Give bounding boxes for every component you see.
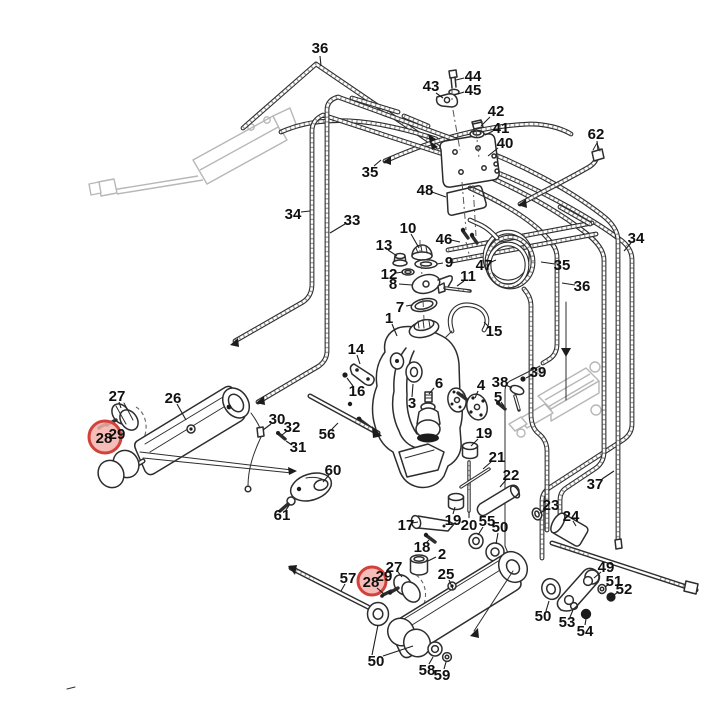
part-label-22: 22 bbox=[503, 467, 520, 484]
ghost-pump-assembly bbox=[509, 362, 601, 437]
part-label-60: 60 bbox=[325, 462, 342, 479]
part-label-59: 59 bbox=[434, 667, 451, 684]
part-label-47: 47 bbox=[476, 257, 493, 274]
callout-layer: 3643444542414062354834331013912811711546… bbox=[89, 40, 645, 684]
part-label-50: 50 bbox=[368, 653, 385, 670]
part-label-37: 37 bbox=[587, 476, 604, 493]
part-label-14: 14 bbox=[348, 341, 365, 358]
part-label-11: 11 bbox=[460, 268, 476, 285]
part-label-36: 36 bbox=[574, 278, 591, 295]
part-label-56: 56 bbox=[319, 426, 336, 443]
part-label-61: 61 bbox=[274, 507, 291, 524]
part-label-40: 40 bbox=[497, 135, 514, 152]
part-label-33: 33 bbox=[344, 212, 361, 229]
part-label-43: 43 bbox=[423, 78, 440, 95]
part-label-57: 57 bbox=[340, 570, 357, 587]
part-label-13: 13 bbox=[376, 237, 393, 254]
ghost-trim-cylinder bbox=[89, 108, 296, 196]
part-label-34: 34 bbox=[628, 230, 645, 247]
parts-diagram-page: 3643444542414062354834331013912811711546… bbox=[0, 0, 720, 720]
part-label-16: 16 bbox=[349, 383, 366, 400]
part-label-46: 46 bbox=[436, 231, 453, 248]
part-label-24: 24 bbox=[563, 508, 580, 525]
part-label-3: 3 bbox=[408, 395, 416, 412]
part-label-53: 53 bbox=[559, 614, 576, 631]
part-label-21: 21 bbox=[489, 449, 506, 466]
part-label-34: 34 bbox=[285, 206, 302, 223]
part-label-50: 50 bbox=[492, 519, 509, 536]
leader-line-34 bbox=[301, 211, 310, 212]
leader-line-50 bbox=[372, 625, 378, 655]
part-label-6: 6 bbox=[435, 375, 443, 392]
leader-line-37 bbox=[602, 471, 614, 479]
part-label-19: 19 bbox=[445, 512, 462, 529]
part-label-35: 35 bbox=[362, 164, 379, 181]
part-label-25: 25 bbox=[438, 566, 455, 583]
part-label-28: 28 bbox=[363, 574, 380, 591]
manifold-block-40 bbox=[440, 134, 499, 187]
part-label-15: 15 bbox=[486, 323, 503, 340]
scan-mark bbox=[67, 687, 75, 689]
part-label-62: 62 bbox=[588, 126, 605, 143]
u-tube-15 bbox=[446, 305, 487, 337]
cable-30 bbox=[245, 413, 264, 492]
part-label-18: 18 bbox=[414, 539, 431, 556]
part-label-42: 42 bbox=[488, 103, 505, 120]
part-label-48: 48 bbox=[417, 182, 434, 199]
part-label-23: 23 bbox=[543, 497, 560, 514]
part-label-29: 29 bbox=[109, 426, 126, 443]
part-label-5: 5 bbox=[494, 389, 502, 406]
part-label-10: 10 bbox=[400, 220, 417, 237]
part-label-9: 9 bbox=[445, 254, 453, 271]
part-label-35: 35 bbox=[554, 257, 571, 274]
part-label-32: 32 bbox=[284, 419, 301, 436]
part-label-1: 1 bbox=[385, 310, 393, 327]
part-label-2: 2 bbox=[438, 546, 446, 563]
part-label-17: 17 bbox=[398, 517, 415, 534]
part-label-45: 45 bbox=[465, 82, 482, 99]
part-label-52: 52 bbox=[616, 581, 633, 598]
leader-line-48 bbox=[432, 192, 446, 197]
exploded-parts-diagram: 3643444542414062354834331013912811711546… bbox=[0, 0, 720, 720]
part-label-27: 27 bbox=[109, 388, 126, 405]
leader-line-2 bbox=[428, 557, 436, 561]
part-label-54: 54 bbox=[577, 623, 594, 640]
part-label-4: 4 bbox=[477, 377, 486, 394]
leader-line-9 bbox=[437, 263, 443, 264]
part-label-31: 31 bbox=[290, 439, 307, 456]
part-label-36: 36 bbox=[312, 40, 329, 57]
leader-line-46 bbox=[451, 240, 460, 242]
part-label-50: 50 bbox=[535, 608, 552, 625]
part-label-19: 19 bbox=[476, 425, 493, 442]
leader-line-8 bbox=[399, 284, 412, 285]
part-label-20: 20 bbox=[461, 517, 478, 534]
part-label-39: 39 bbox=[530, 364, 547, 381]
part-label-7: 7 bbox=[396, 299, 404, 316]
part-label-8: 8 bbox=[389, 276, 397, 293]
part-label-26: 26 bbox=[165, 390, 182, 407]
leader-line-44 bbox=[456, 78, 464, 80]
